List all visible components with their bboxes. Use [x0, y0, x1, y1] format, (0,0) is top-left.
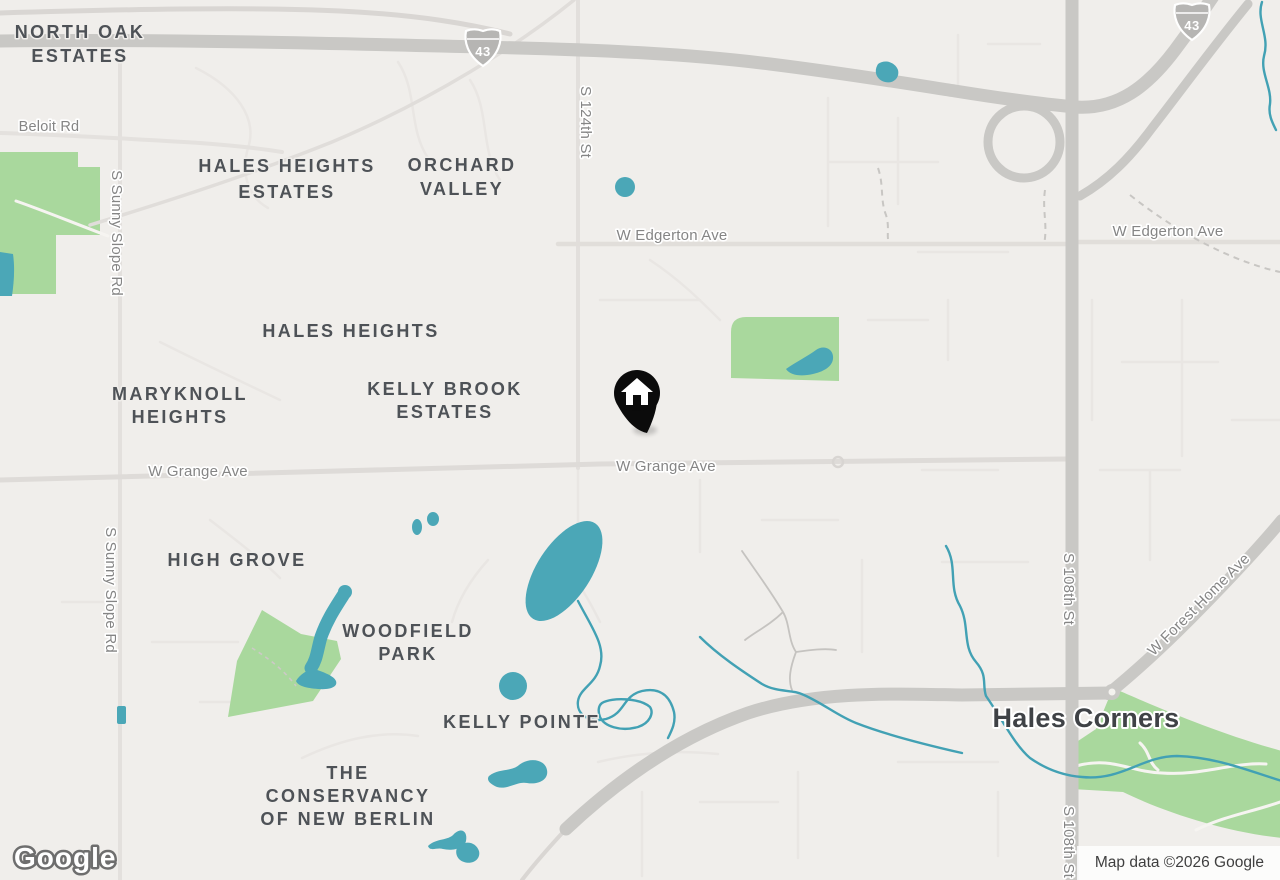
svg-text:OF NEW BERLIN: OF NEW BERLIN [260, 809, 435, 829]
map-viewport[interactable]: Beloit Rd S Sunny Slope Rd S Sunny Slope… [0, 0, 1280, 880]
label-orchard-valley: ORCHARD [408, 155, 517, 175]
label-hales-heights: HALES HEIGHTS [262, 321, 439, 341]
map-canvas[interactable]: Beloit Rd S Sunny Slope Rd S Sunny Slope… [0, 0, 1280, 880]
label-conservancy: THE [326, 763, 369, 783]
svg-text:ESTATES: ESTATES [31, 46, 128, 66]
label-beloit-rd: Beloit Rd [19, 119, 80, 135]
label-124th-st: S 124th St [577, 86, 594, 159]
roundabout-hales-corners [1104, 684, 1120, 700]
label-woodfield-park: WOODFIELD [342, 621, 474, 641]
pond-rect-west [117, 706, 126, 724]
label-north-oak-estates: NORTH OAK [15, 22, 146, 42]
label-sunny-slope-south: S Sunny Slope Rd [102, 527, 119, 653]
label-edgerton-center: W Edgerton Ave [617, 227, 728, 244]
pond-small-b [427, 512, 439, 526]
woodfield-lake-head [338, 585, 352, 599]
label-kelly-pointe: KELLY POINTE [443, 712, 601, 732]
label-high-grove: HIGH GROVE [167, 550, 306, 570]
label-hales-corners-city: Hales Corners [993, 703, 1180, 733]
google-logo[interactable]: Google [14, 842, 116, 873]
label-sunny-slope-north: S Sunny Slope Rd [108, 170, 125, 296]
svg-text:CONSERVANCY: CONSERVANCY [266, 786, 431, 806]
pond-left-edge [0, 252, 14, 296]
svg-text:HEIGHTS: HEIGHTS [132, 407, 229, 427]
label-grange-west: W Grange Ave [148, 463, 248, 480]
label-edgerton-east: W Edgerton Ave [1113, 223, 1224, 240]
label-kelly-brook-estates: KELLY BROOK [367, 379, 522, 399]
i43-shield-number: 43 [475, 44, 490, 59]
pond-round [499, 672, 527, 700]
house-door [633, 395, 641, 405]
svg-text:ESTATES: ESTATES [238, 182, 335, 202]
pond-124th [615, 177, 635, 197]
svg-text:ESTATES: ESTATES [396, 402, 493, 422]
pond-small-a [412, 519, 422, 535]
label-hales-heights-estates: HALES HEIGHTS [198, 156, 375, 176]
label-grange-center: W Grange Ave [616, 458, 716, 475]
label-108th-st-south: S 108th St [1060, 806, 1077, 879]
svg-text:VALLEY: VALLEY [420, 179, 504, 199]
attribution-text: Map data ©2026 Google [1095, 854, 1264, 872]
label-108th-st: S 108th St [1060, 553, 1077, 626]
label-maryknoll-heights: MARYKNOLL [112, 384, 248, 404]
map-attribution[interactable]: Map data ©2026 Google [1077, 846, 1280, 880]
i43-shield-number: 43 [1184, 18, 1199, 33]
svg-text:PARK: PARK [378, 644, 437, 664]
